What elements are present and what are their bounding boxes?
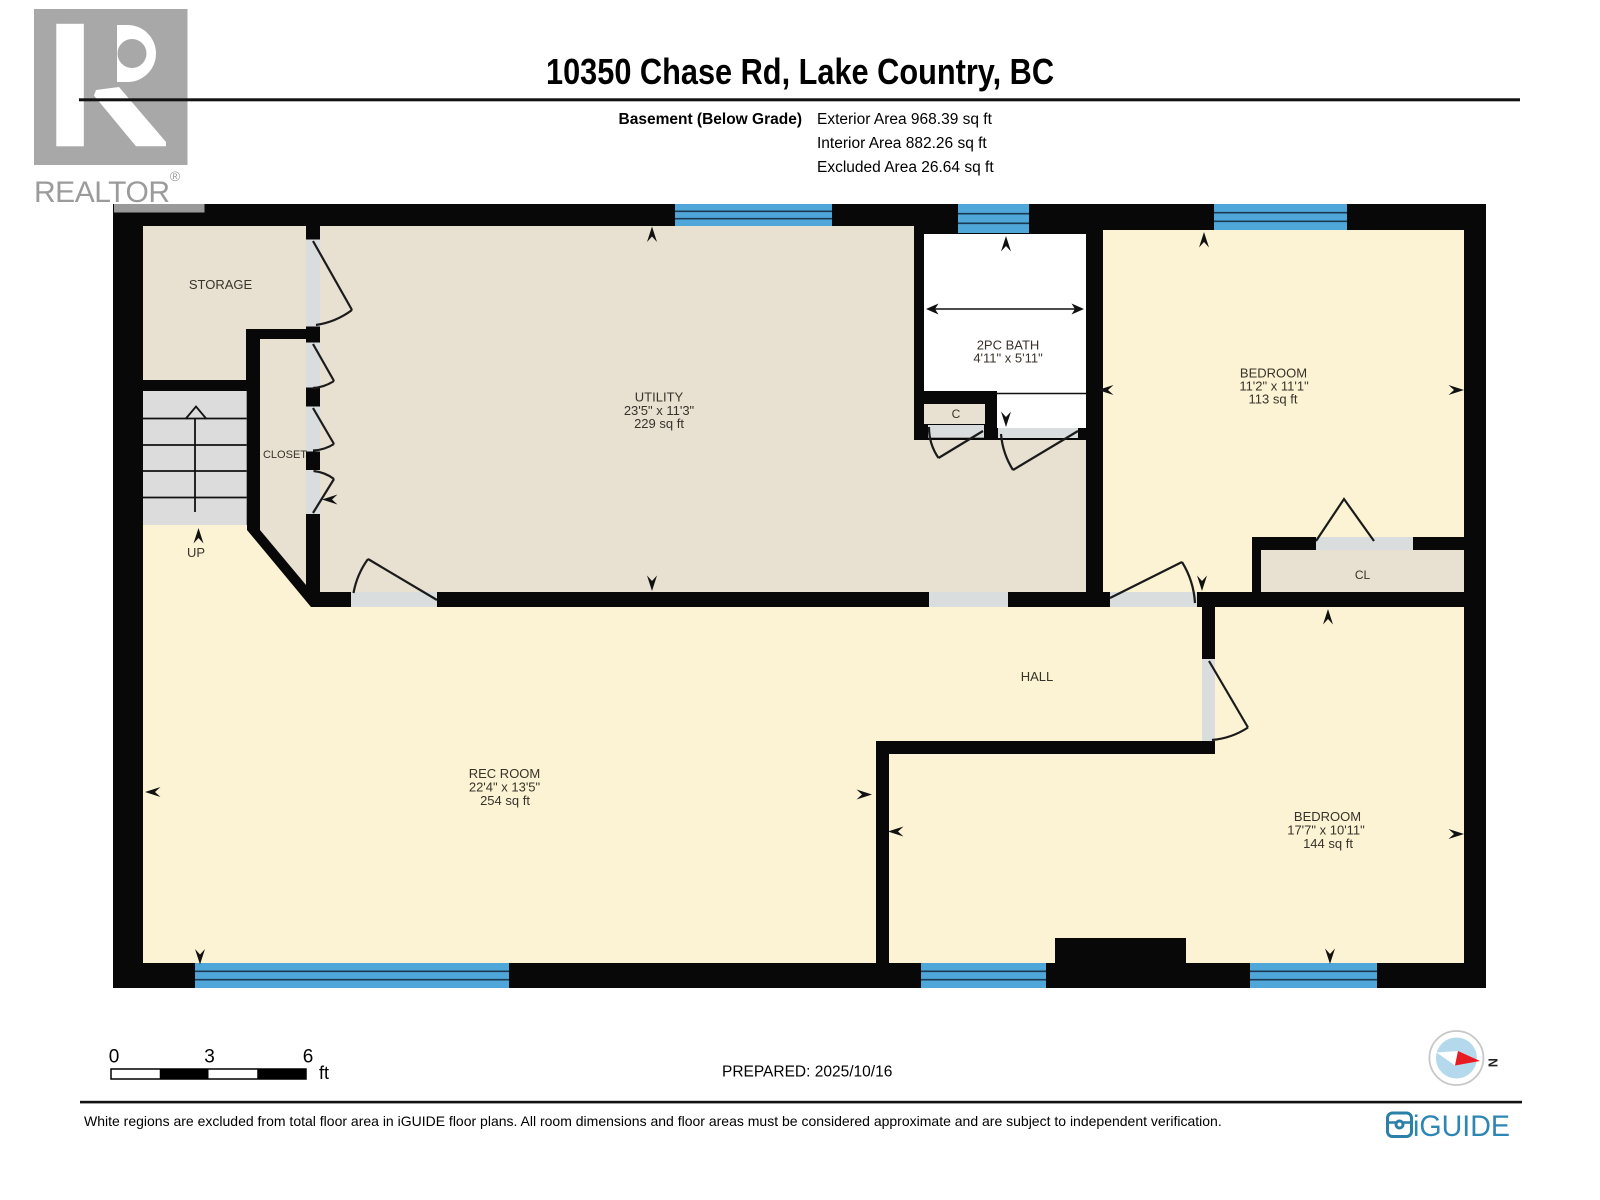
- svg-text:CL: CL: [1355, 568, 1371, 582]
- svg-text:C: C: [952, 407, 961, 421]
- svg-text:113 sq ft: 113 sq ft: [1249, 392, 1298, 407]
- svg-text:3: 3: [204, 1047, 215, 1068]
- svg-text:Exterior Area 968.39 sq ft: Exterior Area 968.39 sq ft: [817, 111, 993, 128]
- svg-text:HALL: HALL: [1021, 669, 1054, 684]
- svg-text:N: N: [1485, 1058, 1499, 1067]
- svg-text:CLOSET: CLOSET: [263, 449, 307, 461]
- svg-text:4'11" x 5'11": 4'11" x 5'11": [973, 351, 1043, 366]
- svg-text:Basement (Below Grade): Basement (Below Grade): [619, 111, 802, 128]
- svg-text:144 sq ft: 144 sq ft: [1303, 836, 1353, 851]
- svg-text:UP: UP: [187, 545, 205, 560]
- svg-text:iGUIDE: iGUIDE: [1413, 1110, 1510, 1143]
- svg-text:ft: ft: [319, 1063, 329, 1083]
- svg-text:Excluded Area 26.64 sq ft: Excluded Area 26.64 sq ft: [817, 159, 994, 176]
- svg-text:10350 Chase Rd, Lake Country,: 10350 Chase Rd, Lake Country, BC: [546, 51, 1054, 92]
- svg-text:6: 6: [303, 1047, 314, 1068]
- svg-text:Interior Area 882.26 sq ft: Interior Area 882.26 sq ft: [817, 135, 987, 152]
- svg-text:229 sq ft: 229 sq ft: [634, 416, 684, 431]
- svg-text:White regions are excluded fro: White regions are excluded from total fl…: [84, 1113, 1222, 1129]
- svg-text:254 sq ft: 254 sq ft: [480, 793, 530, 808]
- svg-text:®: ®: [170, 168, 181, 184]
- svg-text:PREPARED: 2025/10/16: PREPARED: 2025/10/16: [722, 1064, 892, 1081]
- svg-text:STORAGE: STORAGE: [189, 277, 253, 292]
- svg-text:0: 0: [109, 1047, 120, 1068]
